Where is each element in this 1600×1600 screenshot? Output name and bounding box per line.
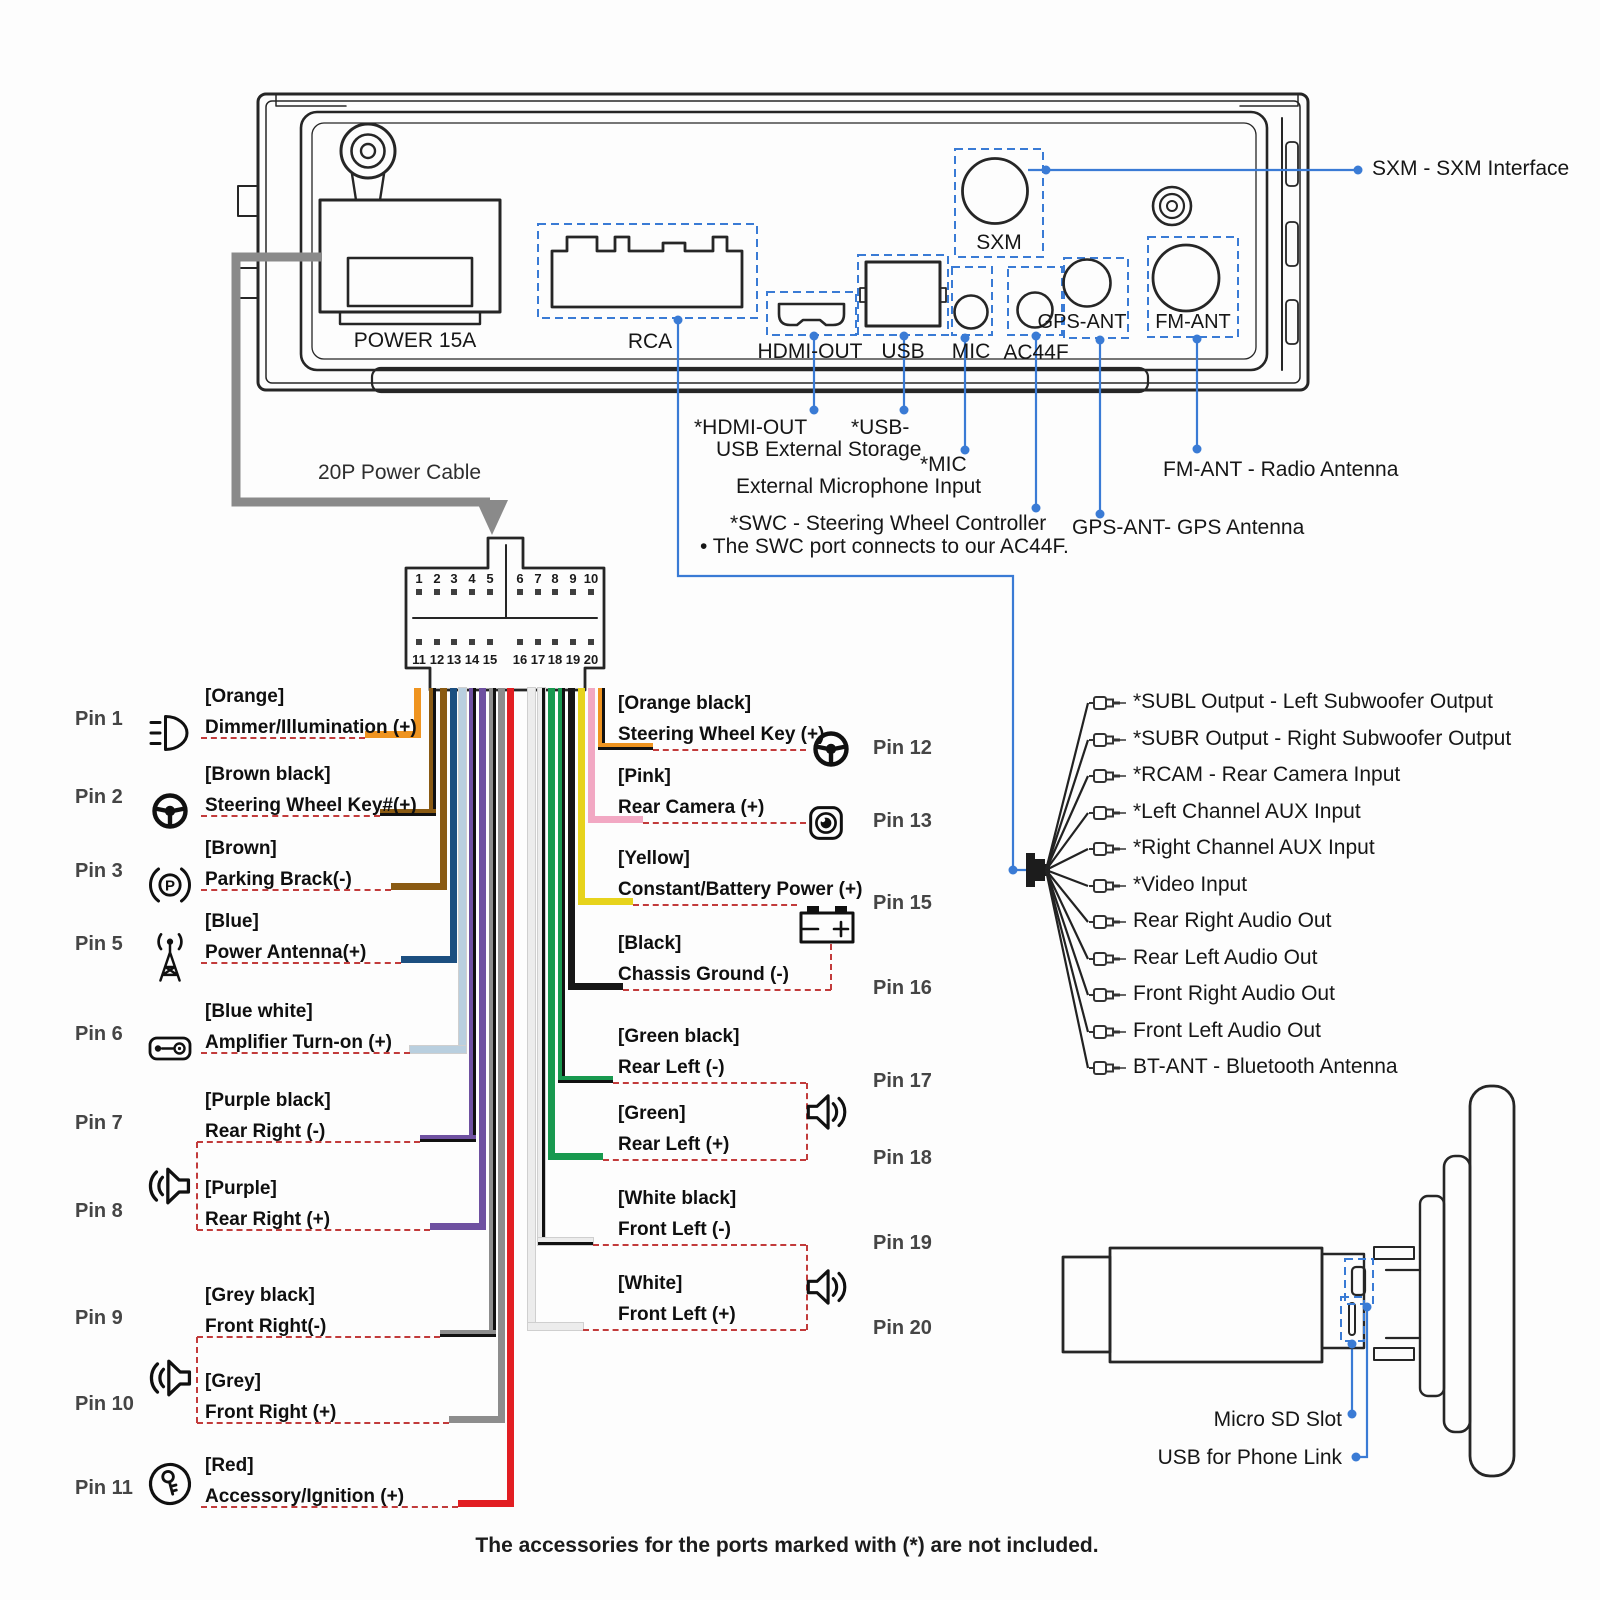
connector-pin-contact	[570, 589, 576, 595]
wire-pin-6	[459, 688, 466, 1053]
power-cable-label: 20P Power Cable	[318, 461, 481, 485]
rca-plug-icon	[1088, 986, 1128, 1004]
connector-pin-number: 20	[584, 652, 598, 667]
rca-plug-icon	[1088, 1059, 1128, 1077]
connector-pin-number: 8	[551, 571, 558, 586]
wire-bend-pin-6	[410, 1046, 466, 1053]
wire-bend-pin-20	[528, 1323, 584, 1330]
pin-callout-dash	[583, 1329, 806, 1331]
pin-wire-color: [Purple black]	[205, 1090, 331, 1112]
connector-pin-contact	[535, 589, 541, 595]
connector-pin-number: 11	[412, 652, 426, 667]
connector-pin-number: 18	[548, 652, 562, 667]
rca-plug-icon	[1088, 1023, 1128, 1041]
connector-pin-number: 17	[531, 652, 545, 667]
connector-pin-number: 7	[534, 571, 541, 586]
pin-function: Rear Left (-)	[618, 1057, 725, 1079]
pin-number-label: Pin 12	[873, 737, 993, 760]
callout-dot	[1363, 1303, 1372, 1312]
rca-port-label: RCA	[600, 330, 700, 354]
wire-bend-pin-17	[558, 1076, 614, 1083]
connector-pin-number: 13	[447, 652, 461, 667]
connector-pin-contact	[434, 639, 440, 645]
callout-dot	[1348, 1410, 1357, 1419]
rca-output-label: *SUBR Output - Right Subwoofer Output	[1133, 727, 1511, 751]
pin-wire-color: [Brown]	[205, 838, 277, 860]
rca-output-label: *Video Input	[1133, 873, 1247, 897]
wire-pin-12	[598, 688, 605, 750]
pin-wire-color: [Pink]	[618, 766, 671, 788]
speaker-icon	[801, 1087, 851, 1137]
connector-pin-contact	[451, 589, 457, 595]
wire-bend-pin-10	[449, 1416, 505, 1423]
wire-bend-pin-9	[440, 1330, 496, 1337]
wire-pin-9	[489, 688, 496, 1337]
mic-callout-sub: External Microphone Input	[736, 475, 981, 499]
pin-function: Steering Wheel Key (+)	[618, 724, 824, 746]
rca-plug-icon	[1088, 804, 1128, 822]
pin-function: Rear Right (+)	[205, 1209, 330, 1231]
pin-wire-color: [Blue white]	[205, 1001, 313, 1023]
callout-dot	[810, 406, 819, 415]
connector-pin-number: 14	[465, 652, 479, 667]
pin-function: Amplifier Turn-on (+)	[205, 1032, 392, 1054]
pin-wire-color: [White]	[618, 1273, 682, 1295]
pin-callout-dash	[623, 989, 831, 991]
amplifier-icon	[146, 1024, 194, 1072]
pin-number-label: Pin 7	[75, 1112, 195, 1135]
wire-pin-3	[440, 688, 447, 890]
rca-plug-icon	[1088, 731, 1128, 749]
wire-bend-pin-11	[458, 1500, 514, 1507]
wire-pin-2	[429, 688, 436, 816]
pin-callout-dash	[603, 1159, 806, 1161]
callout-dot	[674, 316, 683, 325]
speaker-icon	[145, 1352, 197, 1404]
connector-pin-contact	[469, 589, 475, 595]
power-cable-lead	[236, 257, 508, 535]
steering-wheel-icon	[146, 787, 194, 835]
usb-callout: *USB-	[851, 416, 909, 440]
callout-dot	[1354, 166, 1363, 175]
fm-callout: FM-ANT - Radio Antenna	[1163, 458, 1398, 482]
pin-wire-color: [Grey black]	[205, 1285, 315, 1307]
connector-pin-contact	[517, 589, 523, 595]
connector-pin-contact	[552, 589, 558, 595]
usb-phone-label: USB for Phone Link	[1100, 1446, 1342, 1470]
wire-pin-15	[578, 688, 585, 905]
wire-pin-16	[568, 688, 575, 990]
wiring-diagram: POWER 15A RCA HDMI-OUT USB MIC AC44F GPS…	[0, 0, 1600, 1600]
pin-callout-dash	[643, 822, 806, 824]
rca-plug-icon	[1088, 950, 1128, 968]
wire-pin-13	[588, 688, 595, 823]
rca-fan-line	[1046, 870, 1088, 1068]
wire-bend-pin-18	[548, 1153, 604, 1160]
connector-pin-contact	[588, 639, 594, 645]
pair-dash-vertical	[196, 1142, 198, 1230]
micro-sd-slot	[1349, 1303, 1355, 1335]
wire-pin-5	[450, 688, 457, 963]
callout-dot	[900, 406, 909, 415]
pin-function: Chassis Ground (-)	[618, 964, 789, 986]
wire-bend-pin-16	[568, 983, 624, 990]
hdmi-port-label: HDMI-OUT	[745, 340, 875, 364]
pin-function: Front Right(-)	[205, 1316, 326, 1338]
rca-fan-line	[1046, 740, 1088, 870]
pin-function: Rear Right (-)	[205, 1121, 325, 1143]
usb-callout-sub: USB External Storage	[716, 438, 921, 462]
connector-pin-number: 3	[450, 571, 457, 586]
rca-plug-icon	[1088, 767, 1128, 785]
callout-dot	[1193, 335, 1202, 344]
connector-pin-number: 12	[430, 652, 444, 667]
pin-function: Rear Camera (+)	[618, 797, 764, 819]
pin-number-label: Pin 19	[873, 1232, 993, 1255]
connector-pin-contact	[416, 589, 422, 595]
speaker-icon	[144, 1160, 196, 1212]
wire-bend-pin-19	[538, 1238, 594, 1245]
camera-icon	[803, 800, 849, 846]
usb-port	[858, 255, 948, 335]
rca-output-label: *Right Channel AUX Input	[1133, 836, 1375, 860]
callout-dot	[1096, 336, 1105, 345]
20p-connector	[406, 538, 604, 690]
rca-plug-icon	[1088, 694, 1128, 712]
pin-number-label: Pin 17	[873, 1070, 993, 1093]
rca-fan-lines	[1046, 703, 1088, 1068]
gps-port-label: GPS-ANT	[1036, 311, 1128, 334]
rca-output-label: Rear Right Audio Out	[1133, 909, 1331, 933]
connector-pin-contact	[451, 639, 457, 645]
rca-plug-icon	[1088, 877, 1128, 895]
speaker-icon	[801, 1262, 851, 1312]
rca-fan-line	[1046, 703, 1088, 870]
ac44f-port-label: AC44F	[995, 341, 1077, 365]
wire-pin-20	[528, 688, 535, 1330]
connector-pin-contact	[535, 639, 541, 645]
pin-number-label: Pin 20	[873, 1317, 993, 1340]
pin-number-label: Pin 15	[873, 892, 993, 915]
hdmi-callout: *HDMI-OUT	[694, 416, 807, 440]
pin-wire-color: [Brown black]	[205, 764, 331, 786]
callout-dot	[1348, 1340, 1357, 1349]
connector-pin-contact	[487, 639, 493, 645]
pin-wire-color: [Red]	[205, 1455, 254, 1477]
rca-output-label: *RCAM - Rear Camera Input	[1133, 763, 1400, 787]
pin-number-label: Pin 13	[873, 810, 993, 833]
callout-dot	[1042, 166, 1051, 175]
connector-pin-contact	[469, 639, 475, 645]
wire-pin-10	[498, 688, 505, 1423]
mic-callout: *MIC	[920, 453, 967, 477]
pin-function: Parking Brack(-)	[205, 869, 352, 891]
pin-wire-color: [White black]	[618, 1188, 736, 1210]
gps-callout: GPS-ANT- GPS Antenna	[1072, 516, 1304, 540]
connector-pin-number: 16	[513, 652, 527, 667]
connector-pin-contact	[416, 639, 422, 645]
pin-number-label: Pin 9	[75, 1307, 195, 1330]
rca-plug-icon	[1088, 913, 1128, 931]
connector-pin-number: 4	[468, 571, 475, 586]
pin-callout-dash	[633, 904, 797, 906]
connector-pin-contact	[434, 589, 440, 595]
wire-bend-pin-3	[391, 883, 447, 890]
sxm-port-label: SXM	[965, 231, 1033, 255]
swc-callout: *SWC - Steering Wheel Controller	[730, 512, 1046, 536]
wire-pin-7	[469, 688, 476, 1142]
pin-function: Accessory/Ignition (+)	[205, 1486, 404, 1508]
connector-pin-number: 10	[584, 571, 598, 586]
callout-dot	[1009, 866, 1018, 875]
pin-callout-dash	[593, 1244, 806, 1246]
rca-output-label: Front Left Audio Out	[1133, 1019, 1321, 1043]
pin-wire-color: [Green black]	[618, 1026, 739, 1048]
wire-pin-18	[548, 688, 555, 1160]
wire-pin-17	[558, 688, 565, 1083]
pin-wire-color: [Black]	[618, 933, 681, 955]
pin-function: Constant/Battery Power (+)	[618, 879, 862, 901]
mic-port	[952, 267, 992, 335]
pin-function: Dimmer/Illumination (+)	[205, 717, 417, 739]
pin-wire-color: [Orange black]	[618, 693, 751, 715]
wire-pin-11	[507, 688, 514, 1507]
wire-bend-pin-5	[401, 956, 457, 963]
hdmi-port	[767, 292, 856, 335]
rca-output-label: Front Right Audio Out	[1133, 982, 1335, 1006]
rca-output-label: BT-ANT - Bluetooth Antenna	[1133, 1055, 1398, 1079]
pin-callout-dash	[653, 749, 806, 751]
usb-port-label: USB	[868, 340, 938, 364]
pin-wire-color: [Blue]	[205, 911, 259, 933]
fm-port-label: FM-ANT	[1146, 311, 1240, 334]
pin-function: Front Left (-)	[618, 1219, 731, 1241]
pin-number-label: Pin 16	[873, 977, 993, 1000]
rca-output-label: Rear Left Audio Out	[1133, 946, 1317, 970]
headlight-icon	[146, 709, 194, 757]
pin-wire-color: [Green]	[618, 1103, 686, 1125]
connector-pin-number: 5	[486, 571, 493, 586]
callout-dot	[1352, 1453, 1361, 1462]
connector-pin-number: 19	[566, 652, 580, 667]
swc-callout-sub: • The SWC port connects to our AC44F.	[700, 535, 1069, 559]
connector-pin-number: 1	[415, 571, 422, 586]
wire-pin-8	[479, 688, 486, 1230]
micro-sd-label: Micro SD Slot	[1140, 1408, 1342, 1432]
wire-bend-pin-8	[430, 1223, 486, 1230]
wire-pin-19	[538, 688, 545, 1245]
rca-port	[538, 224, 757, 318]
callout-dot	[1193, 445, 1202, 454]
pin-function: Front Right (+)	[205, 1402, 336, 1424]
pin-wire-color: [Orange]	[205, 686, 284, 708]
connector-pin-number: 9	[569, 571, 576, 586]
connector-pin-number: 15	[483, 652, 497, 667]
power-port-label: POWER 15A	[330, 329, 500, 353]
pin-number-label: Pin 18	[873, 1147, 993, 1170]
wire-bend-pin-7	[420, 1135, 476, 1142]
pin-function: Rear Left (+)	[618, 1134, 729, 1156]
pin-function: Steering Wheel Key#(+)	[205, 795, 417, 817]
connector-pin-contact	[517, 639, 523, 645]
pin-function: Front Left (+)	[618, 1304, 736, 1326]
connector-pin-contact	[588, 589, 594, 595]
pin-wire-color: [Purple]	[205, 1178, 277, 1200]
connector-pin-contact	[570, 639, 576, 645]
steering-wheel-icon	[807, 725, 855, 773]
battery-ground-dash	[830, 944, 832, 990]
ignition-key-icon	[146, 1460, 194, 1508]
pin-wire-color: [Grey]	[205, 1371, 261, 1393]
power-port	[320, 124, 500, 324]
connector-pin-number: 6	[516, 571, 523, 586]
sxm-callout: SXM - SXM Interface	[1372, 157, 1569, 181]
rca-plug-icon	[1088, 840, 1128, 858]
battery-icon	[798, 901, 856, 945]
rca-fan-line	[1046, 870, 1088, 995]
connector-pin-number: 2	[433, 571, 440, 586]
pin-function: Power Antenna(+)	[205, 942, 366, 964]
pin-callout-dash	[613, 1082, 806, 1084]
connector-pin-contact	[552, 639, 558, 645]
parking-brake-icon: P	[146, 861, 194, 909]
pin-wire-color: [Yellow]	[618, 848, 690, 870]
connector-pin-contact	[487, 589, 493, 595]
svg-text:P: P	[165, 878, 175, 895]
rca-output-label: *SUBL Output - Left Subwoofer Output	[1133, 690, 1493, 714]
rca-output-label: *Left Channel AUX Input	[1133, 800, 1361, 824]
antenna-icon	[143, 929, 197, 987]
accessories-note: The accessories for the ports marked wit…	[387, 1534, 1187, 1558]
